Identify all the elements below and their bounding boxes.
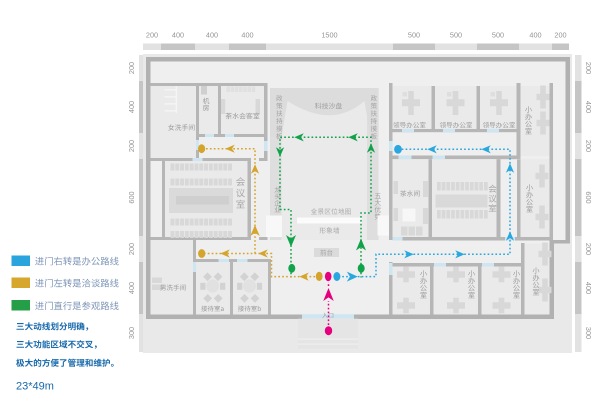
svg-text:400: 400 bbox=[584, 282, 593, 294]
svg-text:200: 200 bbox=[127, 140, 136, 152]
svg-text:400: 400 bbox=[206, 31, 218, 40]
svg-text:500: 500 bbox=[408, 31, 420, 40]
svg-text:200: 200 bbox=[127, 62, 136, 74]
svg-text:400: 400 bbox=[172, 31, 184, 40]
svg-text:600: 600 bbox=[127, 191, 136, 203]
svg-text:400: 400 bbox=[241, 31, 253, 40]
svg-text:400: 400 bbox=[127, 101, 136, 113]
svg-text:23*49m: 23*49m bbox=[16, 381, 54, 393]
svg-text:500: 500 bbox=[492, 31, 504, 40]
svg-text:400: 400 bbox=[529, 31, 541, 40]
svg-text:200: 200 bbox=[584, 243, 593, 255]
svg-text:1500: 1500 bbox=[321, 31, 337, 40]
svg-text:200: 200 bbox=[554, 31, 566, 40]
svg-text:300: 300 bbox=[584, 327, 593, 339]
svg-text:200: 200 bbox=[127, 243, 136, 255]
svg-text:500: 500 bbox=[450, 31, 462, 40]
svg-text:200: 200 bbox=[584, 62, 593, 74]
svg-text:600: 600 bbox=[584, 191, 593, 203]
svg-text:400: 400 bbox=[127, 282, 136, 294]
svg-text:200: 200 bbox=[584, 140, 593, 152]
svg-text:200: 200 bbox=[146, 31, 158, 40]
svg-text:300: 300 bbox=[127, 327, 136, 339]
svg-text:400: 400 bbox=[584, 101, 593, 113]
